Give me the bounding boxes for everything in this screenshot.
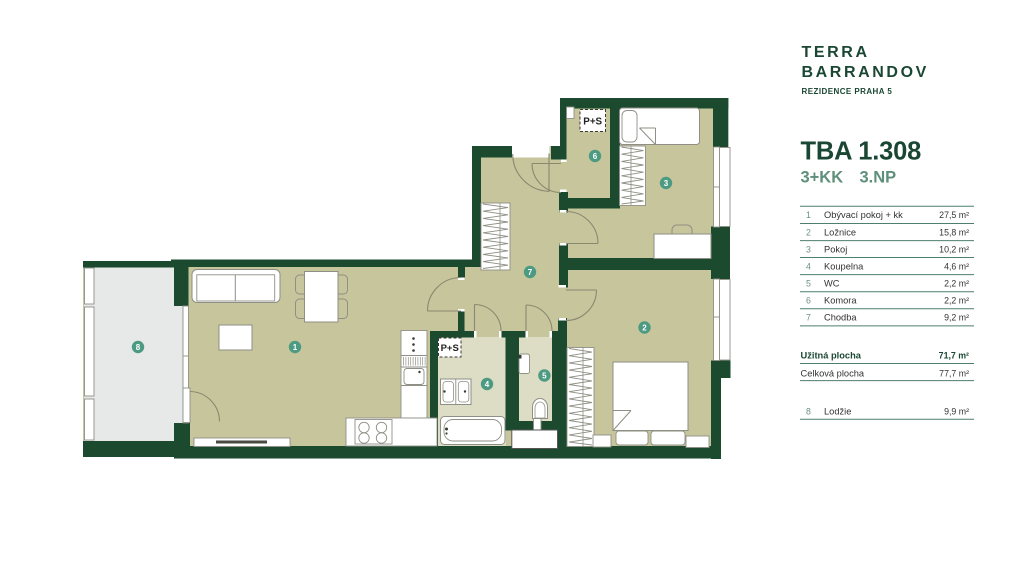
svg-text:Obývací pokoj + kk: Obývací pokoj + kk (824, 210, 903, 220)
svg-text:Užitná plocha: Užitná plocha (801, 351, 862, 361)
svg-text:Lodžie: Lodžie (824, 406, 851, 416)
svg-text:2,2 m²: 2,2 m² (944, 296, 969, 306)
svg-text:8: 8 (806, 406, 811, 416)
svg-text:8: 8 (136, 343, 141, 352)
svg-text:7: 7 (528, 268, 533, 277)
svg-text:1: 1 (806, 210, 811, 220)
svg-text:REZIDENCE PRAHA 5: REZIDENCE PRAHA 5 (802, 87, 893, 96)
svg-text:4: 4 (806, 261, 811, 271)
svg-text:Chodba: Chodba (824, 313, 857, 323)
svg-text:WC: WC (824, 278, 840, 288)
svg-text:3: 3 (806, 244, 811, 254)
svg-text:P+S: P+S (583, 116, 602, 127)
svg-text:4: 4 (485, 380, 490, 389)
svg-text:2,2 m²: 2,2 m² (944, 278, 969, 288)
svg-text:9,2 m²: 9,2 m² (944, 313, 969, 323)
svg-text:Ložnice: Ložnice (824, 227, 856, 237)
svg-text:15,8 m²: 15,8 m² (939, 227, 969, 237)
svg-text:BARRANDOV: BARRANDOV (802, 64, 929, 81)
svg-text:1: 1 (293, 343, 298, 352)
svg-text:2: 2 (642, 323, 647, 332)
svg-text:6: 6 (593, 152, 598, 161)
svg-text:Koupelna: Koupelna (824, 261, 864, 271)
svg-text:Celková plocha: Celková plocha (801, 368, 865, 378)
svg-text:TBA 1.308: TBA 1.308 (801, 138, 922, 166)
svg-text:5: 5 (542, 371, 547, 380)
svg-text:5: 5 (806, 278, 811, 288)
svg-text:6: 6 (806, 296, 811, 306)
svg-text:TERRA: TERRA (802, 44, 870, 61)
svg-text:77,7 m²: 77,7 m² (939, 368, 969, 378)
svg-text:P+S: P+S (441, 343, 459, 354)
svg-text:3+KK: 3+KK (801, 169, 844, 187)
svg-text:Komora: Komora (824, 296, 857, 306)
svg-text:4,6 m²: 4,6 m² (944, 261, 969, 271)
svg-text:10,2 m²: 10,2 m² (939, 244, 969, 254)
svg-text:27,5 m²: 27,5 m² (939, 210, 969, 220)
svg-text:71,7 m²: 71,7 m² (939, 351, 969, 361)
svg-text:Pokoj: Pokoj (824, 244, 847, 254)
svg-text:2: 2 (806, 227, 811, 237)
svg-text:3: 3 (664, 179, 669, 188)
svg-text:7: 7 (806, 313, 811, 323)
svg-text:3.NP: 3.NP (860, 169, 897, 187)
svg-text:9,9 m²: 9,9 m² (944, 406, 969, 416)
